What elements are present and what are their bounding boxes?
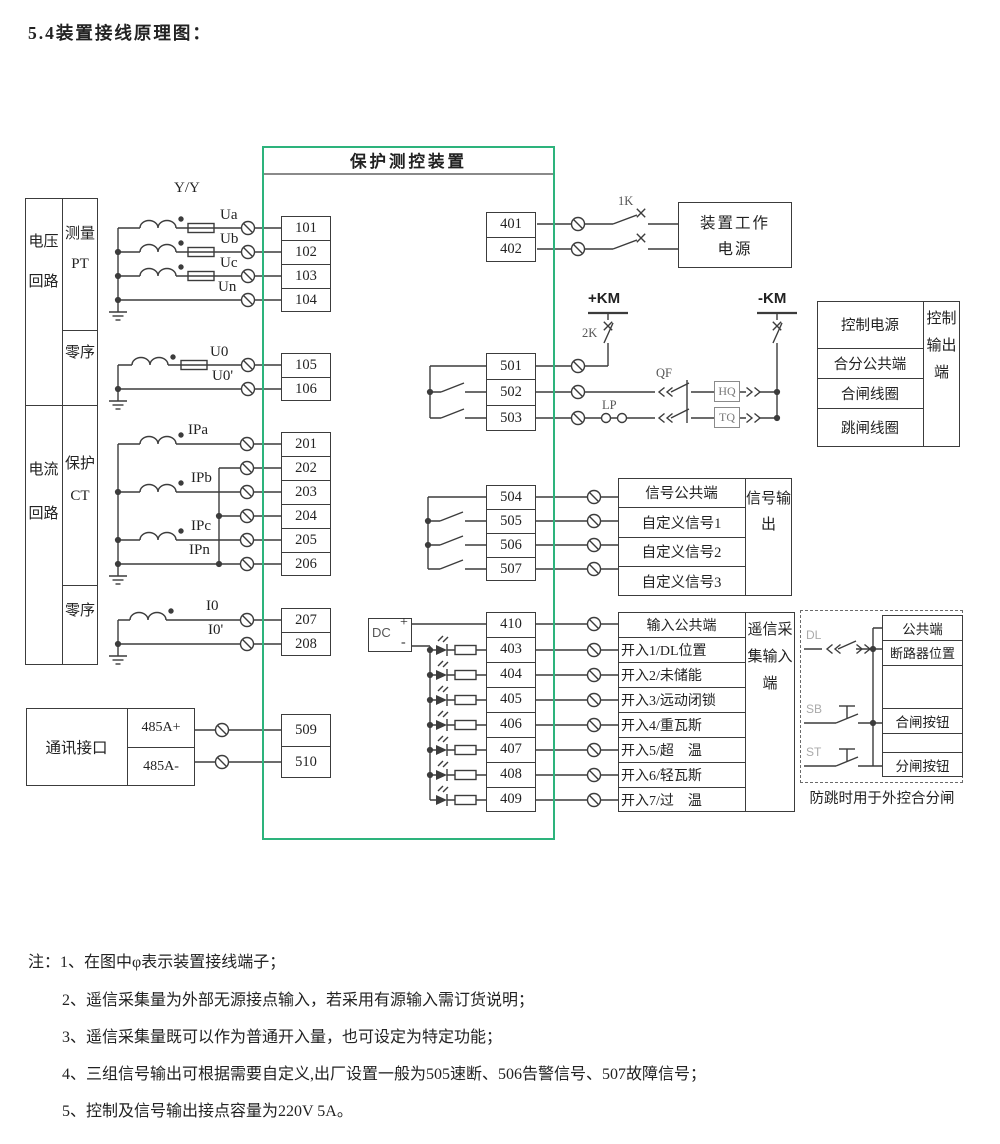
closing-coil-hq-box: HQ (714, 381, 740, 402)
ipb-label: IPb (191, 470, 212, 487)
signal-row-common: 信号公共端 (618, 478, 745, 507)
terminal-402: 402 (486, 237, 536, 262)
input-row-5: 开入5/超 温 (618, 737, 745, 762)
ct-zero-divider (62, 585, 98, 586)
comm-port-a: 485A+ (127, 708, 195, 747)
current-zero-label: 零序 (62, 596, 98, 626)
input-row-7: 开入7/过 温 (618, 787, 745, 812)
terminal-207: 207 (281, 608, 331, 632)
divider (882, 733, 963, 734)
hq-label: HQ (718, 384, 735, 399)
terminal-205: 205 (281, 528, 331, 552)
signal-row-custom3: 自定义信号3 (618, 566, 745, 596)
link-lp-label: LP (602, 398, 617, 413)
terminal-202: 202 (281, 456, 331, 480)
ua-label: Ua (220, 207, 238, 224)
input-row-4: 开入4/重瓦斯 (618, 712, 745, 737)
ipn-label: IPn (189, 542, 210, 559)
terminal-502: 502 (486, 379, 536, 405)
terminal-201: 201 (281, 432, 331, 456)
i0-label: I0 (206, 598, 219, 615)
note-3: 3、遥信采集量既可以作为普通开入量，也可设定为特定功能； (62, 1023, 502, 1047)
terminal-102: 102 (281, 240, 331, 264)
terminal-206: 206 (281, 552, 331, 576)
terminal-408: 408 (486, 762, 536, 787)
control-row-common: 合分公共端 (817, 348, 923, 378)
external-row-breaker-pos: 断路器位置 (882, 640, 963, 665)
left-table-mid-divider (25, 405, 98, 406)
device-power-line1: 装置工作 (678, 210, 792, 234)
note-1: 注：1、在图中φ表示装置接线端子； (28, 948, 285, 972)
page-title: 5.4装置接线原理图： (28, 20, 212, 45)
input-row-6: 开入6/轻瓦斯 (618, 762, 745, 787)
terminal-407: 407 (486, 737, 536, 762)
terminal-208: 208 (281, 632, 331, 656)
yy-label: Y/Y (174, 180, 200, 197)
wiring-diagram-page: 5.4装置接线原理图： 保护测控装置 电压回路 电流回路 测量PT 零序 保护C… (0, 0, 1000, 1144)
power-wires (537, 209, 678, 256)
terminal-510: 510 (281, 746, 331, 778)
breaker-qf-label: QF (656, 366, 672, 381)
input-side-label: 遥信采集输入端 (745, 617, 795, 698)
control-row-power: 控制电源 (817, 301, 923, 348)
dc-minus-label: - (401, 635, 406, 651)
comm-name: 通讯接口 (26, 708, 127, 786)
dc-plus-label: + (400, 615, 408, 631)
u0-label: U0 (210, 344, 228, 361)
terminal-403: 403 (486, 637, 536, 662)
voltage-zero-label: 零序 (62, 338, 98, 368)
tripping-coil-tq-box: TQ (714, 407, 740, 428)
terminal-104: 104 (281, 288, 331, 312)
terminal-405: 405 (486, 687, 536, 712)
terminal-509: 509 (281, 714, 331, 746)
terminal-505: 505 (486, 509, 536, 533)
terminal-203: 203 (281, 480, 331, 504)
terminal-406: 406 (486, 712, 536, 737)
input-row-2: 开入2/未储能 (618, 662, 745, 687)
ipc-label: IPc (191, 518, 211, 535)
device-title: 保护测控装置 (264, 148, 553, 175)
dc-label: DC (372, 625, 391, 640)
terminal-503: 503 (486, 405, 536, 431)
current-zero-wires (109, 609, 281, 664)
terminal-106: 106 (281, 377, 331, 401)
uc-label: Uc (220, 255, 238, 272)
sb-button-label: SB (806, 702, 822, 716)
st-button-label: ST (806, 745, 821, 759)
ipa-label: IPa (188, 422, 208, 439)
terminal-105: 105 (281, 353, 331, 377)
dl-contact-label: DL (806, 628, 821, 642)
terminal-103: 103 (281, 264, 331, 288)
input-row-1: 开入1/DL位置 (618, 637, 745, 662)
signal-row-custom2: 自定义信号2 (618, 537, 745, 566)
external-row-common: 公共端 (882, 615, 963, 640)
input-row-3: 开入3/远动闭锁 (618, 687, 745, 712)
external-row-open-btn: 分闸按钮 (882, 752, 963, 777)
tq-label: TQ (719, 410, 735, 425)
voltage-pt-wires (109, 217, 281, 320)
note-2: 2、遥信采集量为外部无源接点输入，若采用有源输入需订货说明； (62, 986, 534, 1010)
measure-pt-label: 测量PT (62, 219, 98, 279)
protect-ct-label: 保护CT (62, 448, 98, 512)
switch-1k-label: 1K (618, 194, 633, 209)
input-row-common: 输入公共端 (618, 612, 745, 637)
terminal-404: 404 (486, 662, 536, 687)
current-circuit-label: 电流回路 (25, 448, 62, 536)
terminal-410: 410 (486, 612, 536, 637)
voltage-circuit-label: 电压回路 (25, 222, 62, 302)
signal-output-side-label: 信号输出 (745, 486, 792, 538)
terminal-506: 506 (486, 533, 536, 557)
external-caption: 防跳时用于外控合分闸 (798, 787, 966, 807)
control-row-trip-coil: 跳闸线圈 (817, 408, 923, 447)
ub-label: Ub (220, 231, 238, 248)
terminal-507: 507 (486, 557, 536, 581)
voltage-zero-wires (109, 355, 281, 409)
note-4: 4、三组信号输出可根据需要自定义,出厂设置一般为505速断、506告警信号、50… (62, 1060, 706, 1084)
terminal-401: 401 (486, 212, 536, 237)
un-label: Un (218, 279, 236, 296)
note-5: 5、控制及信号输出接点容量为220V 5A。 (62, 1097, 353, 1121)
terminal-501: 501 (486, 353, 536, 379)
km-positive-label: +KM (588, 290, 620, 307)
signal-row-custom1: 自定义信号1 (618, 507, 745, 537)
terminal-101: 101 (281, 216, 331, 240)
terminal-504: 504 (486, 485, 536, 509)
control-output-side-label: 控制输出端 (923, 306, 960, 387)
switch-2k-label: 2K (582, 326, 597, 341)
u0p-label: U0' (212, 368, 233, 385)
divider (882, 665, 963, 666)
current-ct-wires (109, 433, 281, 584)
km-negative-label: -KM (758, 290, 786, 307)
pt-zero-divider (62, 330, 98, 331)
device-power-line2: 电源 (678, 236, 792, 260)
control-row-close-coil: 合闸线圈 (817, 378, 923, 408)
i0p-label: I0' (208, 622, 223, 639)
comm-port-b: 485A- (127, 747, 195, 786)
terminal-409: 409 (486, 787, 536, 812)
terminal-204: 204 (281, 504, 331, 528)
external-row-close-btn: 合闸按钮 (882, 708, 963, 733)
